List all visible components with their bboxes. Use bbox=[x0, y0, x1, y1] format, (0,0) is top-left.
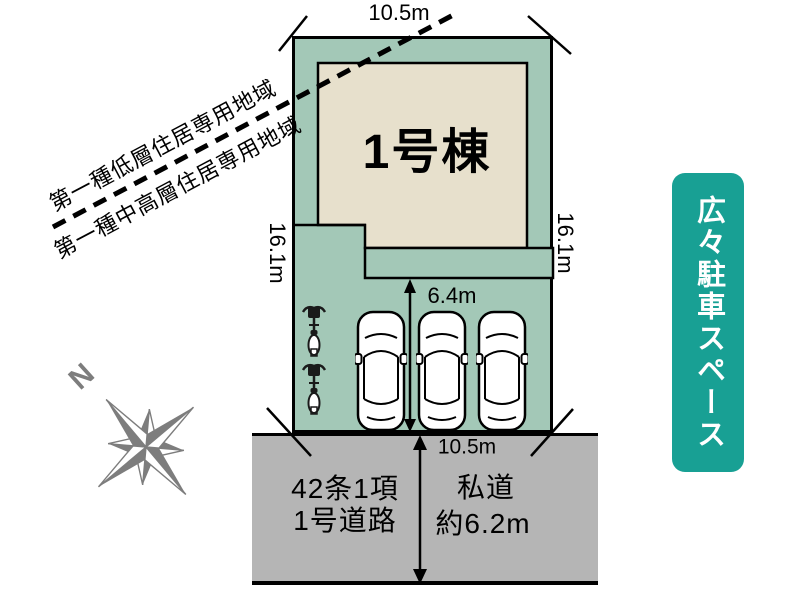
road-type-line2: 1号道路 bbox=[293, 507, 397, 535]
road-type-line1: 42条1項 bbox=[291, 475, 399, 503]
building-label: 1号棟 bbox=[363, 129, 492, 177]
dimension-frontage: 10.5m bbox=[438, 437, 496, 458]
road-width-label: 約6.2m bbox=[435, 510, 530, 538]
compass-north-label: N bbox=[64, 359, 100, 396]
dimension-top-width: 10.5m bbox=[368, 2, 429, 24]
road-kind-label: 私道 bbox=[457, 474, 515, 502]
dimension-right-depth: 16.1m bbox=[554, 212, 576, 273]
lot-area bbox=[292, 36, 553, 433]
dimension-left-depth: 16.1m bbox=[266, 222, 288, 283]
parking-banner-text: 広々駐車スペース bbox=[694, 195, 723, 451]
site-plan-canvas: 広々駐車スペース bbox=[0, 0, 800, 600]
dimension-parking-depth: 6.4m bbox=[428, 285, 477, 307]
parking-banner: 広々駐車スペース bbox=[672, 173, 744, 472]
